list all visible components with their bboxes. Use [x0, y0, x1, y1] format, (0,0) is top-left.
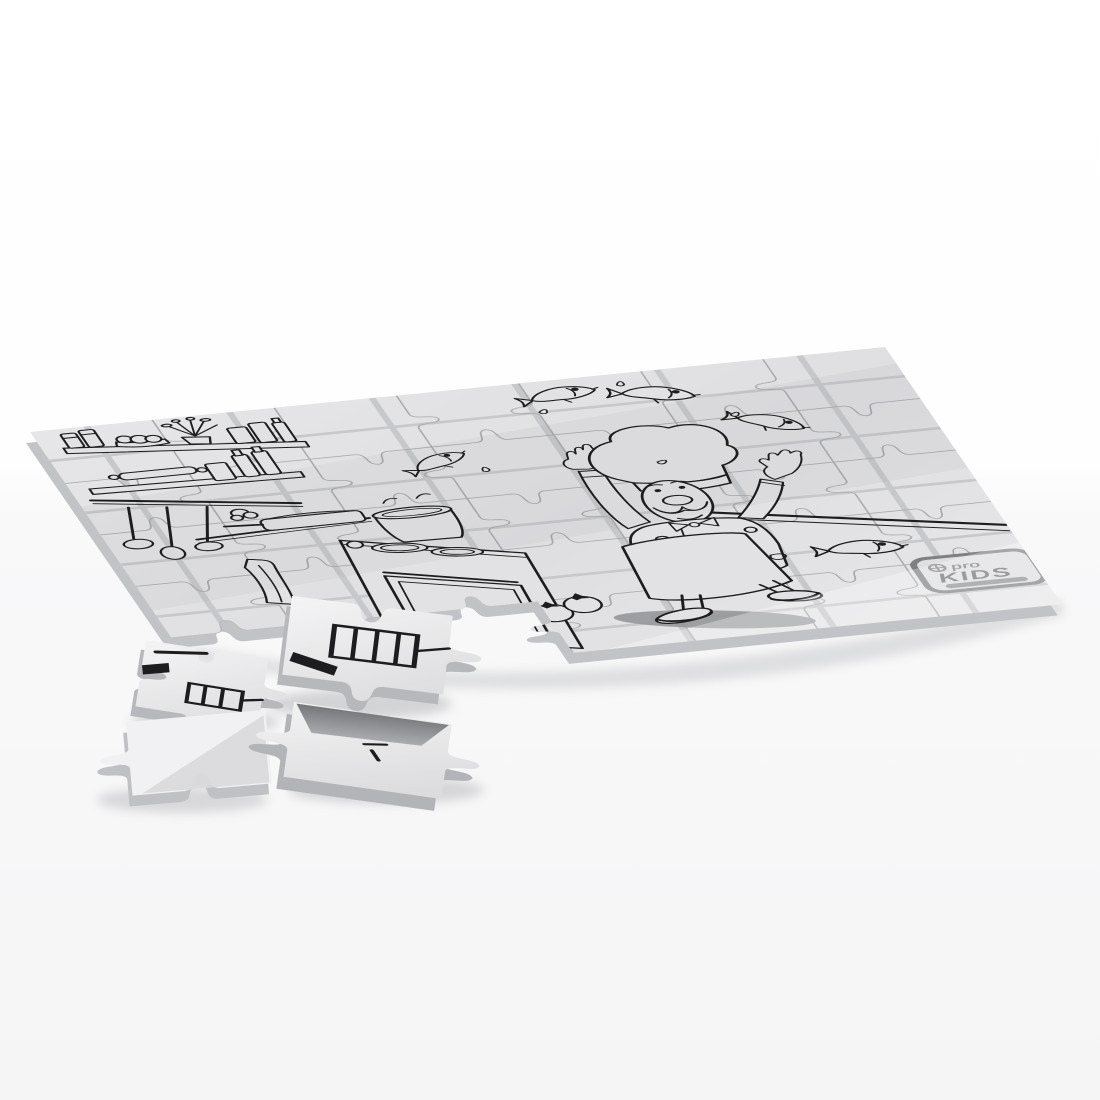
- puzzle-product-image: pro KIDS: [0, 0, 1100, 1100]
- scene-canvas: pro KIDS: [0, 0, 1100, 1100]
